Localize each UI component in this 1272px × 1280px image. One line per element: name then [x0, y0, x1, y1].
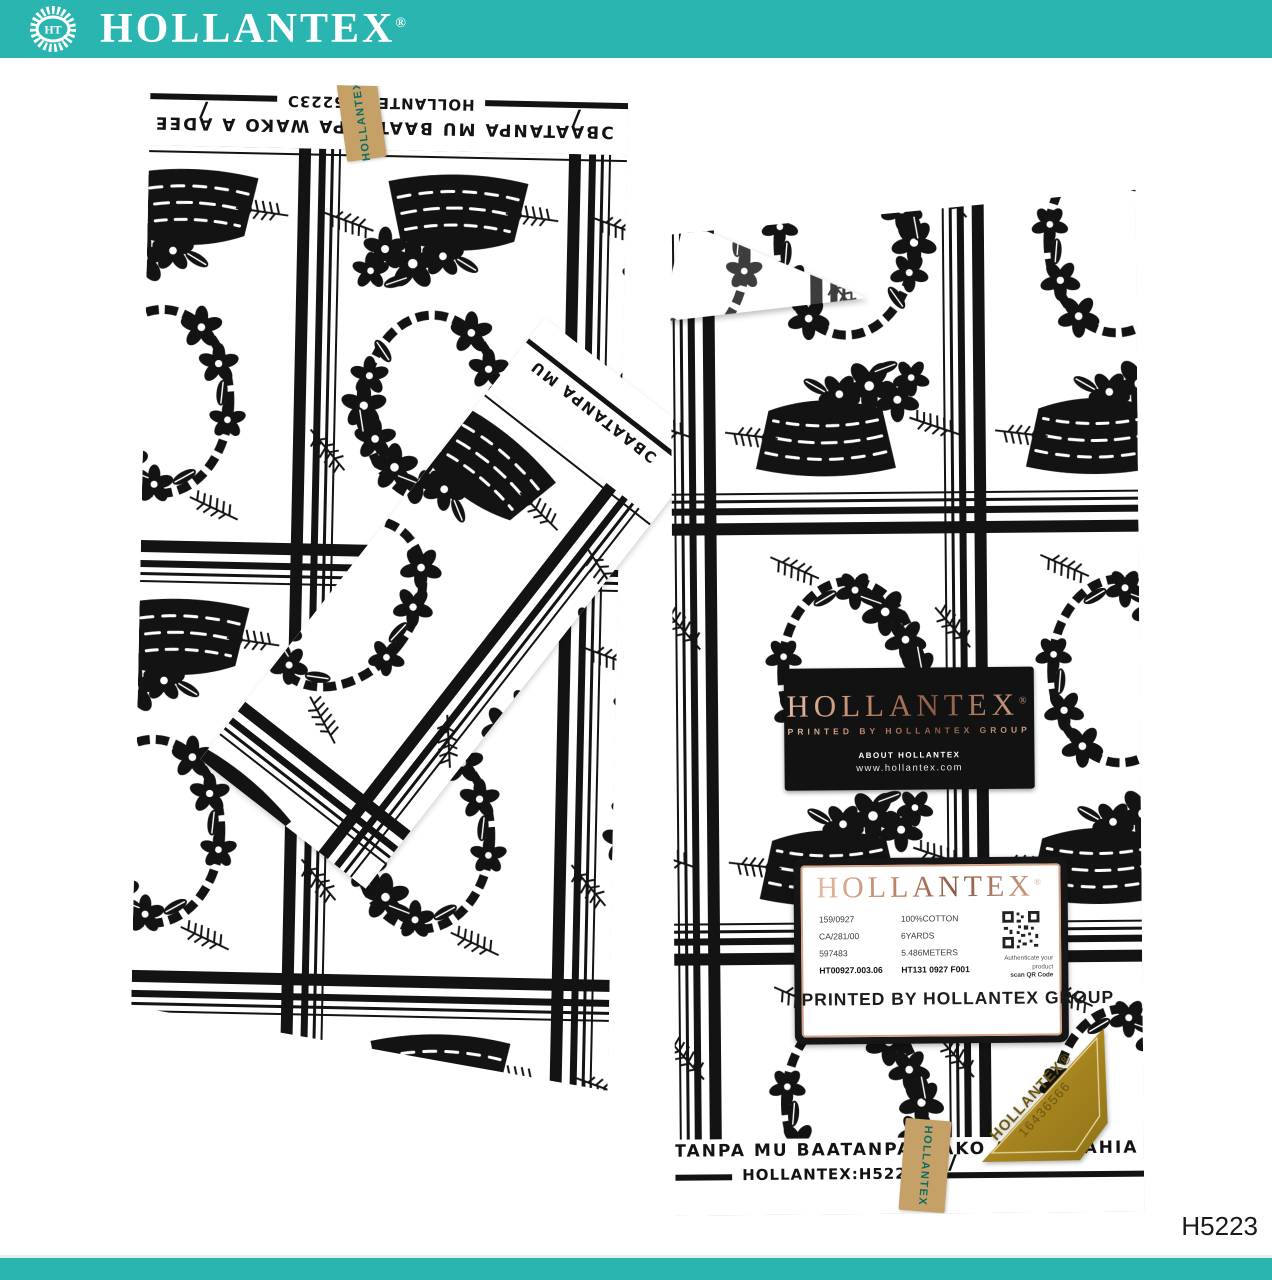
header-brand-title: HOLLANTEX® — [100, 8, 406, 50]
selvage-brand-code: HOLLANTEX:H5223Ɔ — [277, 92, 485, 114]
spec-card-inner: HOLLANTEX® 159/0927 CA/281/00 597483 HT0… — [800, 863, 1061, 1037]
sticker-text: HOLLANTEX — [350, 80, 373, 162]
product-code: H5223 — [1181, 1211, 1258, 1242]
registered-mark: ® — [1034, 876, 1045, 886]
black-brand-label: HOLLANTEX® PRINTED BY HOLLANTEX GROUP AB… — [784, 667, 1035, 791]
spec-value: HT00927.003.06 — [819, 962, 901, 980]
qr-caption-line1: Authenticate your product — [985, 954, 1053, 972]
spec-card-label: HOLLANTEX® 159/0927 CA/281/00 597483 HT0… — [793, 856, 1069, 1044]
selvage-left-top: ƆBAATANPA MU BAATANPA WAKO A ADEE AHIA Y… — [149, 85, 628, 142]
card-column-1: 159/0927 CA/281/00 597483 HT00927.003.06 — [819, 911, 902, 982]
spec-value: 100%COTTON — [901, 910, 983, 928]
tan-brand-sticker: HOLLANTEX — [899, 1118, 952, 1213]
hollantex-sunburst-logo: HT — [16, 4, 90, 54]
spec-value: CA/281/00 — [819, 928, 901, 946]
registered-mark: ® — [1019, 695, 1032, 706]
selvage-tick: / — [201, 96, 208, 122]
card-column-2: 100%COTTON 6YARDS 5.486METERS HT131 0927… — [901, 910, 984, 981]
spec-value: HT131 0927 F001 — [901, 961, 983, 979]
footer-bar — [0, 1255, 1272, 1280]
spec-value: 5.486METERS — [901, 944, 983, 962]
label-brand: HOLLANTEX® — [786, 687, 1032, 725]
qr-caption: Authenticate your product scan QR Code — [985, 954, 1057, 980]
header-bar: HT HOLLANTEX® — [0, 0, 1272, 58]
qr-code — [1001, 910, 1041, 950]
selvage-rule: / / HOLLANTEX:H5223Ɔ — [150, 85, 628, 117]
card-spec-grid: 159/0927 CA/281/00 597483 HT00927.003.06… — [819, 909, 1062, 982]
selvage-proverb: ƆBAATANPA MU BAATANPA WAKO A ADEE AHIA Y… — [149, 112, 627, 142]
registered-mark: ® — [395, 16, 405, 31]
selvage-rule: / / HOLLANTEX:H5223Ɔ — [602, 1163, 1144, 1190]
selvage-tick: / — [574, 104, 581, 130]
card-qr-block: Authenticate your product scan QR Code — [985, 909, 1058, 980]
spec-value: 597483 — [819, 945, 901, 963]
label-tagline: PRINTED BY HOLLANTEX GROUP — [784, 725, 1034, 737]
selvage-tick: / — [949, 1150, 955, 1176]
logo-monogram: HT — [44, 23, 61, 37]
card-brand: HOLLANTEX® — [816, 869, 1045, 905]
qr-caption-line2: scan QR Code — [985, 971, 1053, 980]
selvage-tick: / — [645, 1153, 651, 1179]
label-website: www.hollantex.com — [785, 762, 1035, 775]
label-about: ABOUT HOLLANTEX — [784, 750, 1034, 761]
spec-value: 159/0927 — [819, 911, 901, 929]
gold-authenticity-sticker: HOLLANTEX® 16436566 — [973, 1024, 1114, 1167]
fold-corner-triangle — [658, 218, 871, 326]
product-photo: HT HOLLANTEX® ƆBAATANPA MU BAATANPA WAKO… — [0, 0, 1272, 1280]
fabric-panel-right: ƆBAATANPA MU BAATANPA WAKO A ADEE AHIA Y… — [594, 190, 1145, 1217]
card-footer-text: PRINTED BY HOLLANTEX GROUP — [801, 987, 1061, 1010]
spec-value: 6YARDS — [901, 927, 983, 945]
sticker-text: HOLLANTEX — [916, 1125, 934, 1206]
